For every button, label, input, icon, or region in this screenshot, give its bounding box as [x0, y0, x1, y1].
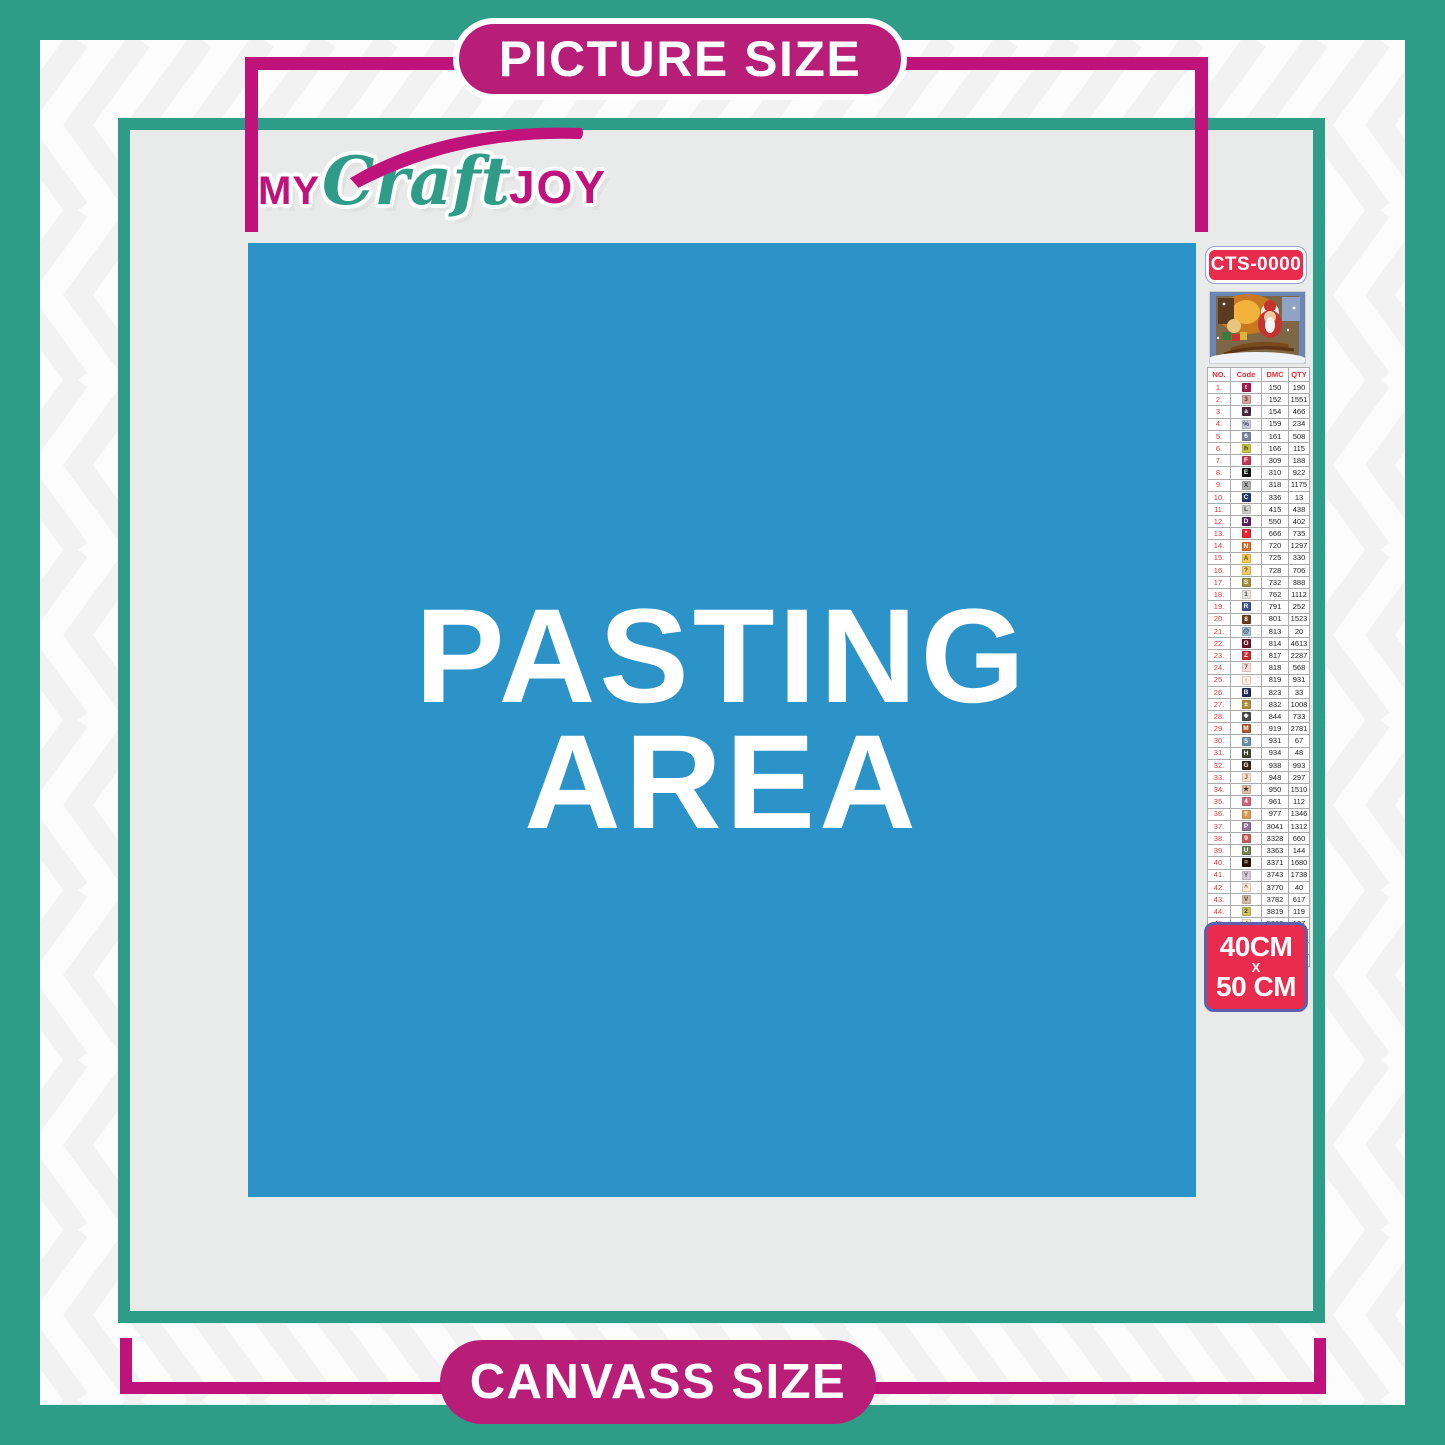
color-symbol-swatch: 6 [1242, 432, 1251, 441]
chart-cell-qty: 1680 [1289, 857, 1310, 869]
chart-row: 6.h166115 [1208, 442, 1310, 454]
chart-cell-no: 15. [1208, 552, 1231, 564]
chart-cell-qty: 1008 [1289, 698, 1310, 710]
chart-cell-qty: 922 [1289, 467, 1310, 479]
chart-cell-qty: 119 [1289, 906, 1310, 918]
color-symbol-swatch: a [1242, 407, 1251, 416]
chart-cell-dmc: 817 [1262, 650, 1289, 662]
chart-cell-no: 44. [1208, 906, 1231, 918]
chart-row: 39.U3363144 [1208, 845, 1310, 857]
chart-cell-code: 9 [1231, 832, 1262, 844]
chart-cell-dmc: 161 [1262, 430, 1289, 442]
chart-cell-dmc: 3371 [1262, 857, 1289, 869]
chart-cell-qty: 234 [1289, 418, 1310, 430]
chart-cell-code: L [1231, 503, 1262, 515]
chart-cell-code: = [1231, 857, 1262, 869]
chart-cell-dmc: 938 [1262, 759, 1289, 771]
chart-cell-qty: 67 [1289, 735, 1310, 747]
chart-cell-code: @ [1231, 625, 1262, 637]
chart-cell-no: 42. [1208, 881, 1231, 893]
chart-row: 27.±8321008 [1208, 698, 1310, 710]
chart-cell-code: * [1231, 528, 1262, 540]
chart-cell-code: R [1231, 601, 1262, 613]
chart-cell-code: 5 [1231, 735, 1262, 747]
brand-logo: MYCraftJOY [258, 142, 607, 220]
color-symbol-swatch: ↑ [1242, 676, 1251, 685]
color-symbol-swatch: t [1242, 383, 1251, 392]
chart-cell-no: 22. [1208, 637, 1231, 649]
chart-row: 19.R791252 [1208, 601, 1310, 613]
chart-cell-dmc: 814 [1262, 637, 1289, 649]
chart-cell-no: 2. [1208, 394, 1231, 406]
chart-cell-code: A [1231, 552, 1262, 564]
chart-cell-dmc: 728 [1262, 564, 1289, 576]
chart-header-code: Code [1231, 368, 1262, 382]
chart-cell-code: 4 [1231, 796, 1262, 808]
chart-cell-qty: 993 [1289, 759, 1310, 771]
chart-row: 44.23819119 [1208, 906, 1310, 918]
chart-cell-no: 9. [1208, 479, 1231, 491]
chart-cell-code: 6 [1231, 430, 1262, 442]
color-symbol-swatch: = [1242, 858, 1251, 867]
chart-cell-dmc: 931 [1262, 735, 1289, 747]
chart-cell-no: 32. [1208, 759, 1231, 771]
color-symbol-swatch: 3 [1242, 395, 1251, 404]
chart-row: 9.X3181175 [1208, 479, 1310, 491]
chart-cell-code: C [1231, 491, 1262, 503]
chart-cell-code: 1 [1231, 589, 1262, 601]
chart-cell-qty: 1175 [1289, 479, 1310, 491]
chart-cell-no: 19. [1208, 601, 1231, 613]
chart-row: 37.P30411312 [1208, 820, 1310, 832]
product-preview-image [1209, 291, 1306, 364]
chart-cell-code: ❖ [1231, 711, 1262, 723]
chart-cell-dmc: 152 [1262, 394, 1289, 406]
chart-cell-qty: 330 [1289, 552, 1310, 564]
chart-row: 16.?728706 [1208, 564, 1310, 576]
chart-row: 41.Y37431738 [1208, 869, 1310, 881]
chart-cell-no: 38. [1208, 832, 1231, 844]
chart-cell-dmc: 318 [1262, 479, 1289, 491]
chart-cell-qty: 735 [1289, 528, 1310, 540]
chart-header-dmc: DMC [1262, 368, 1289, 382]
chart-cell-no: 10. [1208, 491, 1231, 503]
color-symbol-swatch: ± [1242, 700, 1251, 709]
chart-cell-qty: 20 [1289, 625, 1310, 637]
chart-cell-qty: 1346 [1289, 808, 1310, 820]
color-symbol-swatch: ❖ [1242, 712, 1251, 721]
chart-row: 43.V3782617 [1208, 893, 1310, 905]
chart-cell-dmc: 309 [1262, 455, 1289, 467]
color-symbol-swatch: U [1242, 846, 1251, 855]
chart-row: 38.93328660 [1208, 832, 1310, 844]
chart-cell-code: O [1231, 637, 1262, 649]
color-symbol-swatch: A [1242, 554, 1251, 563]
chart-cell-code: U [1231, 845, 1262, 857]
chart-cell-qty: 4613 [1289, 637, 1310, 649]
chart-cell-code: h [1231, 442, 1262, 454]
color-symbol-swatch: % [1242, 420, 1251, 429]
chart-cell-dmc: 844 [1262, 711, 1289, 723]
chart-cell-dmc: 832 [1262, 698, 1289, 710]
chart-cell-qty: 1112 [1289, 589, 1310, 601]
chart-cell-code: % [1231, 418, 1262, 430]
chart-cell-qty: 438 [1289, 503, 1310, 515]
chart-cell-dmc: 801 [1262, 613, 1289, 625]
color-symbol-swatch: T [1242, 810, 1251, 819]
chart-cell-qty: 115 [1289, 442, 1310, 454]
chart-row: 12.D550402 [1208, 516, 1310, 528]
chart-cell-qty: 144 [1289, 845, 1310, 857]
color-symbol-swatch: X [1242, 481, 1251, 490]
chart-row: 5.6161508 [1208, 430, 1310, 442]
chart-cell-dmc: 166 [1262, 442, 1289, 454]
chart-cell-no: 26. [1208, 686, 1231, 698]
diamond-painting-canvas-poster: MYCraftJOY PASTING AREA CTS-0000 [0, 0, 1445, 1445]
chart-cell-dmc: 720 [1262, 540, 1289, 552]
chart-cell-dmc: 310 [1262, 467, 1289, 479]
chart-cell-code: 3 [1231, 394, 1262, 406]
chart-cell-no: 23. [1208, 650, 1231, 662]
chart-cell-code: T [1231, 808, 1262, 820]
chart-cell-qty: 1312 [1289, 820, 1310, 832]
chart-header-no: NO. [1208, 368, 1231, 382]
chart-cell-code: D [1231, 516, 1262, 528]
color-symbol-swatch: B [1242, 688, 1251, 697]
chart-header-row: NO. Code DMC QTY [1208, 368, 1310, 382]
chart-cell-qty: 48 [1289, 747, 1310, 759]
chart-cell-no: 27. [1208, 698, 1231, 710]
color-symbol-swatch: ★ [1242, 785, 1251, 794]
santa-sleigh-illustration [1210, 292, 1305, 363]
chart-cell-qty: 1738 [1289, 869, 1310, 881]
chart-row: 13.*666735 [1208, 528, 1310, 540]
chart-cell-code: F [1231, 455, 1262, 467]
color-symbol-swatch: * [1242, 529, 1251, 538]
picture-size-bracket-left [245, 57, 258, 232]
chart-cell-code: X [1231, 479, 1262, 491]
color-symbol-swatch: O [1242, 639, 1251, 648]
chart-cell-no: 39. [1208, 845, 1231, 857]
color-symbol-swatch: 2 [1242, 907, 1251, 916]
chart-cell-code: G [1231, 759, 1262, 771]
chart-cell-no: 7. [1208, 455, 1231, 467]
chart-cell-qty: 13 [1289, 491, 1310, 503]
chart-cell-dmc: 336 [1262, 491, 1289, 503]
chart-cell-dmc: 791 [1262, 601, 1289, 613]
chart-cell-no: 5. [1208, 430, 1231, 442]
chart-cell-dmc: 3363 [1262, 845, 1289, 857]
chart-row: 10.C33613 [1208, 491, 1310, 503]
chart-cell-no: 31. [1208, 747, 1231, 759]
chart-row: 20.88011523 [1208, 613, 1310, 625]
chart-cell-code: E [1231, 467, 1262, 479]
chart-cell-qty: 931 [1289, 674, 1310, 686]
color-symbol-swatch: D [1242, 517, 1251, 526]
chart-cell-qty: 466 [1289, 406, 1310, 418]
chart-row: 31.H93448 [1208, 747, 1310, 759]
chart-cell-dmc: 813 [1262, 625, 1289, 637]
chart-cell-qty: 1510 [1289, 784, 1310, 796]
logo-brush-swash [344, 128, 594, 188]
chart-cell-code: 8 [1231, 613, 1262, 625]
chart-cell-qty: 660 [1289, 832, 1310, 844]
chart-cell-dmc: 948 [1262, 772, 1289, 784]
color-symbol-swatch: C [1242, 493, 1251, 502]
chart-cell-no: 18. [1208, 589, 1231, 601]
chart-cell-qty: 112 [1289, 796, 1310, 808]
chart-row: 22.O8144613 [1208, 637, 1310, 649]
chart-cell-dmc: 3041 [1262, 820, 1289, 832]
chart-cell-qty: 2781 [1289, 723, 1310, 735]
chart-cell-dmc: 3770 [1262, 881, 1289, 893]
chart-row: 23.Z8172287 [1208, 650, 1310, 662]
color-symbol-swatch: E [1242, 468, 1251, 477]
chart-cell-qty: 2287 [1289, 650, 1310, 662]
color-symbol-swatch: ^ [1242, 883, 1251, 892]
chart-cell-qty: 706 [1289, 564, 1310, 576]
chart-cell-qty: 190 [1289, 382, 1310, 394]
chart-cell-no: 33. [1208, 772, 1231, 784]
chart-cell-qty: 1297 [1289, 540, 1310, 552]
color-symbol-swatch: 4 [1242, 797, 1251, 806]
chart-row: 35.4961112 [1208, 796, 1310, 808]
color-symbol-swatch: Y [1242, 871, 1251, 880]
chart-cell-code: P [1231, 820, 1262, 832]
chart-cell-qty: 297 [1289, 772, 1310, 784]
chart-cell-no: 16. [1208, 564, 1231, 576]
chart-row: 18.17621112 [1208, 589, 1310, 601]
chart-cell-code: ^ [1231, 881, 1262, 893]
chart-row: 34.★9501510 [1208, 784, 1310, 796]
color-symbol-swatch: 9 [1242, 834, 1251, 843]
chart-row: 8.E310922 [1208, 467, 1310, 479]
chart-row: 14.N7201297 [1208, 540, 1310, 552]
chart-cell-code: Z [1231, 650, 1262, 662]
chart-cell-no: 6. [1208, 442, 1231, 454]
chart-cell-no: 37. [1208, 820, 1231, 832]
chart-cell-qty: 508 [1289, 430, 1310, 442]
color-symbol-swatch: P [1242, 822, 1251, 831]
logo-text-my: MY [258, 169, 320, 220]
chart-cell-dmc: 977 [1262, 808, 1289, 820]
chart-row: 30.593167 [1208, 735, 1310, 747]
chart-cell-dmc: 3819 [1262, 906, 1289, 918]
chart-cell-dmc: 919 [1262, 723, 1289, 735]
chart-cell-code: H [1231, 747, 1262, 759]
color-symbol-swatch: M [1242, 724, 1251, 733]
chart-cell-qty: 252 [1289, 601, 1310, 613]
chart-row: 29.M9192781 [1208, 723, 1310, 735]
chart-cell-no: 3. [1208, 406, 1231, 418]
color-symbol-swatch: S [1242, 578, 1251, 587]
chart-cell-code: ★ [1231, 784, 1262, 796]
chart-row: 24.7818568 [1208, 662, 1310, 674]
chart-cell-dmc: 823 [1262, 686, 1289, 698]
pasting-area-line2: AREA [415, 720, 1029, 846]
chart-cell-code: t [1231, 382, 1262, 394]
chart-cell-code: N [1231, 540, 1262, 552]
chart-cell-dmc: 819 [1262, 674, 1289, 686]
chart-cell-dmc: 934 [1262, 747, 1289, 759]
chart-cell-dmc: 3743 [1262, 869, 1289, 881]
chart-cell-no: 24. [1208, 662, 1231, 674]
color-symbol-swatch: R [1242, 602, 1251, 611]
color-symbol-swatch: G [1242, 761, 1251, 770]
chart-cell-dmc: 3328 [1262, 832, 1289, 844]
picture-size-pill: PICTURE SIZE [453, 18, 907, 100]
chart-row: 11.L415438 [1208, 503, 1310, 515]
chart-row: 36.T9771346 [1208, 808, 1310, 820]
chart-cell-dmc: 818 [1262, 662, 1289, 674]
chart-cell-code: Y [1231, 869, 1262, 881]
chart-cell-no: 35. [1208, 796, 1231, 808]
chart-cell-no: 28. [1208, 711, 1231, 723]
color-symbol-swatch: @ [1242, 627, 1251, 636]
chart-cell-code: ± [1231, 698, 1262, 710]
canvas-size-badge: 40CM X 50 CM [1204, 922, 1308, 1012]
chart-row: 33.J948297 [1208, 772, 1310, 784]
chart-cell-dmc: 732 [1262, 577, 1289, 589]
picture-size-bracket-right [1195, 57, 1208, 232]
dmc-color-chart: NO. Code DMC QTY 1.t1501902.315215513.a1… [1207, 367, 1310, 967]
color-symbol-swatch: 1 [1242, 590, 1251, 599]
chart-cell-code: a [1231, 406, 1262, 418]
chart-cell-no: 40. [1208, 857, 1231, 869]
chart-cell-no: 17. [1208, 577, 1231, 589]
color-symbol-swatch: Z [1242, 651, 1251, 660]
chart-cell-code: M [1231, 723, 1262, 735]
chart-cell-dmc: 961 [1262, 796, 1289, 808]
color-symbol-swatch: N [1242, 542, 1251, 551]
chart-row: 42.^377040 [1208, 881, 1310, 893]
chart-cell-code: V [1231, 893, 1262, 905]
chart-cell-dmc: 415 [1262, 503, 1289, 515]
chart-cell-no: 20. [1208, 613, 1231, 625]
chart-cell-code: B [1231, 686, 1262, 698]
chart-cell-qty: 1551 [1289, 394, 1310, 406]
color-symbol-swatch: 5 [1242, 737, 1251, 746]
chart-cell-no: 8. [1208, 467, 1231, 479]
chart-cell-code: ? [1231, 564, 1262, 576]
product-code-badge: CTS-0000 [1206, 247, 1306, 283]
chart-cell-no: 4. [1208, 418, 1231, 430]
canvass-size-bracket-right [1314, 1338, 1326, 1394]
chart-cell-no: 30. [1208, 735, 1231, 747]
chart-cell-qty: 402 [1289, 516, 1310, 528]
chart-cell-dmc: 159 [1262, 418, 1289, 430]
chart-cell-code: 7 [1231, 662, 1262, 674]
chart-row: 1.t150190 [1208, 382, 1310, 394]
pasting-area-label: PASTING AREA [415, 594, 1029, 846]
chart-cell-code: J [1231, 772, 1262, 784]
chart-row: 2.31521551 [1208, 394, 1310, 406]
chart-row: 25.↑819931 [1208, 674, 1310, 686]
chart-row: 4.%159234 [1208, 418, 1310, 430]
chart-row: 21.@81320 [1208, 625, 1310, 637]
pasting-area: PASTING AREA [248, 243, 1196, 1197]
chart-cell-dmc: 154 [1262, 406, 1289, 418]
color-symbol-swatch: 7 [1242, 663, 1251, 672]
chart-cell-qty: 568 [1289, 662, 1310, 674]
chart-cell-dmc: 666 [1262, 528, 1289, 540]
size-width: 40CM [1220, 934, 1293, 961]
chart-cell-qty: 388 [1289, 577, 1310, 589]
chart-row: 7.F309188 [1208, 455, 1310, 467]
chart-cell-dmc: 550 [1262, 516, 1289, 528]
chart-cell-no: 1. [1208, 382, 1231, 394]
chart-cell-no: 41. [1208, 869, 1231, 881]
chart-cell-qty: 617 [1289, 893, 1310, 905]
color-symbol-swatch: J [1242, 773, 1251, 782]
chart-row: 40.=33711680 [1208, 857, 1310, 869]
color-symbol-swatch: ? [1242, 566, 1251, 575]
chart-cell-dmc: 150 [1262, 382, 1289, 394]
color-symbol-swatch: h [1242, 444, 1251, 453]
chart-cell-code: S [1231, 577, 1262, 589]
chart-row: 3.a154466 [1208, 406, 1310, 418]
chart-cell-dmc: 762 [1262, 589, 1289, 601]
canvass-size-bracket-left [120, 1338, 132, 1394]
chart-cell-no: 13. [1208, 528, 1231, 540]
size-height: 50 CM [1216, 974, 1296, 1001]
chart-cell-code: ↑ [1231, 674, 1262, 686]
chart-row: 32.G938993 [1208, 759, 1310, 771]
pasting-area-line1: PASTING [415, 594, 1029, 720]
chart-cell-dmc: 3782 [1262, 893, 1289, 905]
chart-row: 26.B82333 [1208, 686, 1310, 698]
chart-cell-dmc: 725 [1262, 552, 1289, 564]
chart-cell-no: 43. [1208, 893, 1231, 905]
chart-cell-qty: 33 [1289, 686, 1310, 698]
color-symbol-swatch: H [1242, 749, 1251, 758]
chart-row: 28.❖844733 [1208, 711, 1310, 723]
chart-cell-code: 2 [1231, 906, 1262, 918]
chart-cell-qty: 188 [1289, 455, 1310, 467]
chart-header-qty: QTY [1289, 368, 1310, 382]
canvass-size-pill: CANVASS SIZE [440, 1340, 876, 1424]
color-symbol-swatch: F [1242, 456, 1251, 465]
chart-cell-no: 36. [1208, 808, 1231, 820]
chart-cell-no: 34. [1208, 784, 1231, 796]
color-symbol-swatch: 8 [1242, 615, 1251, 624]
chart-cell-no: 25. [1208, 674, 1231, 686]
chart-row: 15.A725330 [1208, 552, 1310, 564]
color-symbol-swatch: L [1242, 505, 1251, 514]
chart-cell-qty: 733 [1289, 711, 1310, 723]
chart-cell-no: 11. [1208, 503, 1231, 515]
chart-cell-no: 29. [1208, 723, 1231, 735]
chart-row: 17.S732388 [1208, 577, 1310, 589]
color-symbol-swatch: V [1242, 895, 1251, 904]
chart-cell-qty: 1523 [1289, 613, 1310, 625]
chart-cell-no: 21. [1208, 625, 1231, 637]
chart-cell-no: 12. [1208, 516, 1231, 528]
chart-cell-dmc: 950 [1262, 784, 1289, 796]
chart-cell-no: 14. [1208, 540, 1231, 552]
chart-cell-qty: 40 [1289, 881, 1310, 893]
